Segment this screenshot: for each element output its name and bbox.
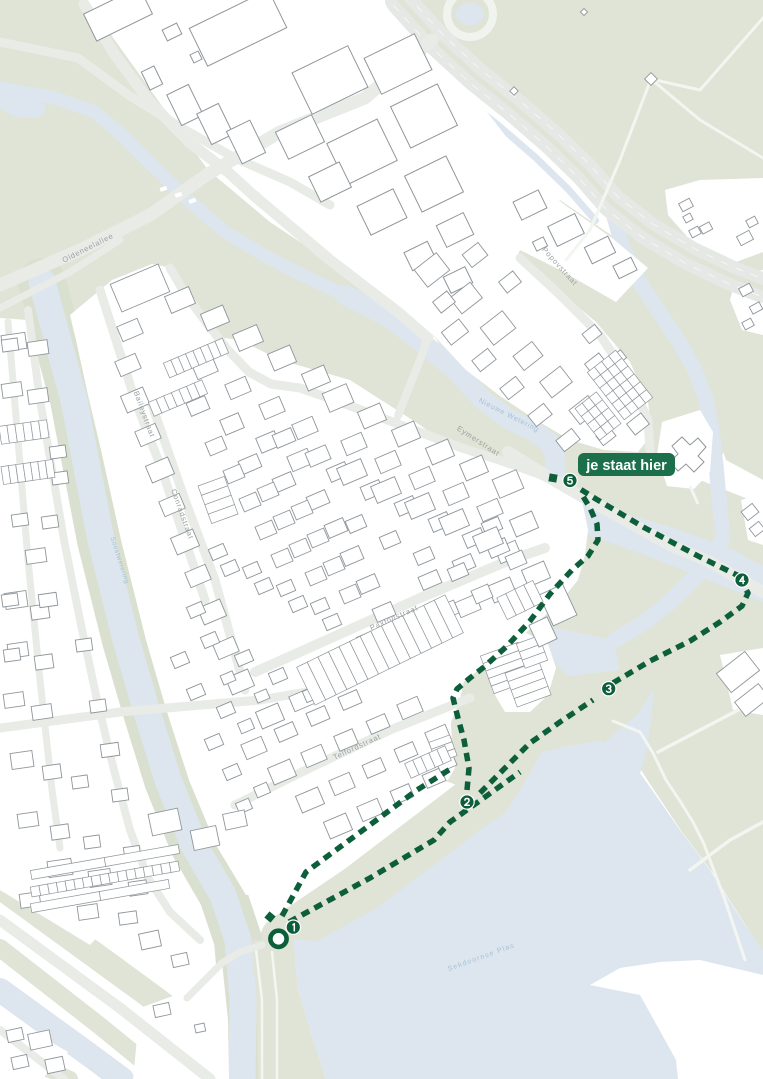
svg-text:je staat hier: je staat hier <box>585 458 667 474</box>
